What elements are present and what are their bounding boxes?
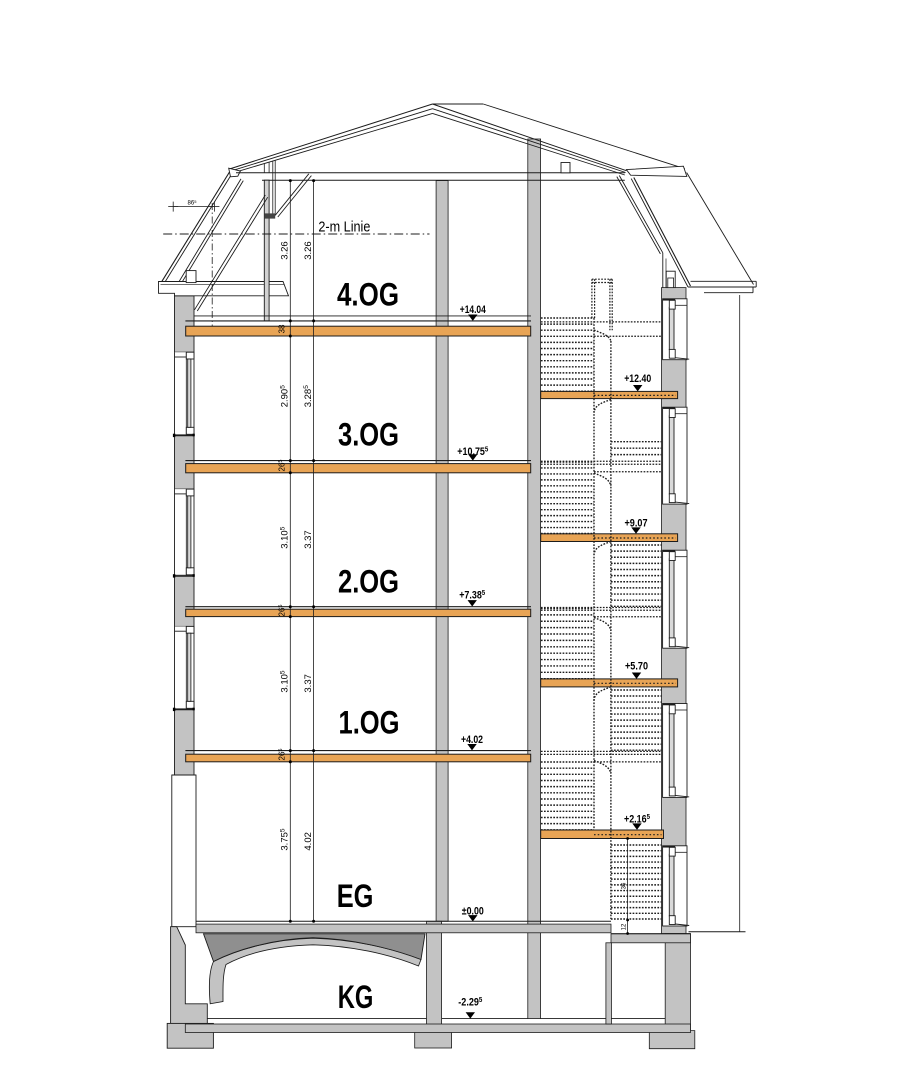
svg-text:-2.295: -2.295 <box>458 995 482 1009</box>
svg-text:3.OG: 3.OG <box>338 417 399 453</box>
svg-text:+14.04: +14.04 <box>460 304 487 316</box>
svg-text:+2.165: +2.165 <box>624 812 650 826</box>
svg-text:4.02: 4.02 <box>303 832 314 851</box>
svg-text:+10.755: +10.755 <box>457 445 488 459</box>
svg-text:KG: KG <box>338 979 374 1015</box>
svg-text:2.OG: 2.OG <box>338 564 399 600</box>
svg-text:+12.40: +12.40 <box>624 373 651 385</box>
svg-text:12: 12 <box>622 923 628 930</box>
svg-text:+7.385: +7.385 <box>459 588 485 602</box>
svg-text:3.37: 3.37 <box>303 530 314 549</box>
svg-text:2-m Linie: 2-m Linie <box>318 220 370 236</box>
svg-text:3.37: 3.37 <box>303 674 314 693</box>
svg-text:1.OG: 1.OG <box>339 705 400 741</box>
svg-text:3.26: 3.26 <box>303 241 314 260</box>
svg-text:3.26: 3.26 <box>280 241 291 260</box>
svg-text:+5.70: +5.70 <box>625 660 648 672</box>
svg-text:36: 36 <box>622 882 628 889</box>
svg-text:±0.00: ±0.00 <box>462 905 484 917</box>
svg-text:38: 38 <box>278 324 287 333</box>
svg-text:4.OG: 4.OG <box>337 277 399 313</box>
svg-text:+9.07: +9.07 <box>625 517 648 529</box>
svg-text:+4.02: +4.02 <box>461 734 483 746</box>
svg-text:EG: EG <box>337 878 374 914</box>
